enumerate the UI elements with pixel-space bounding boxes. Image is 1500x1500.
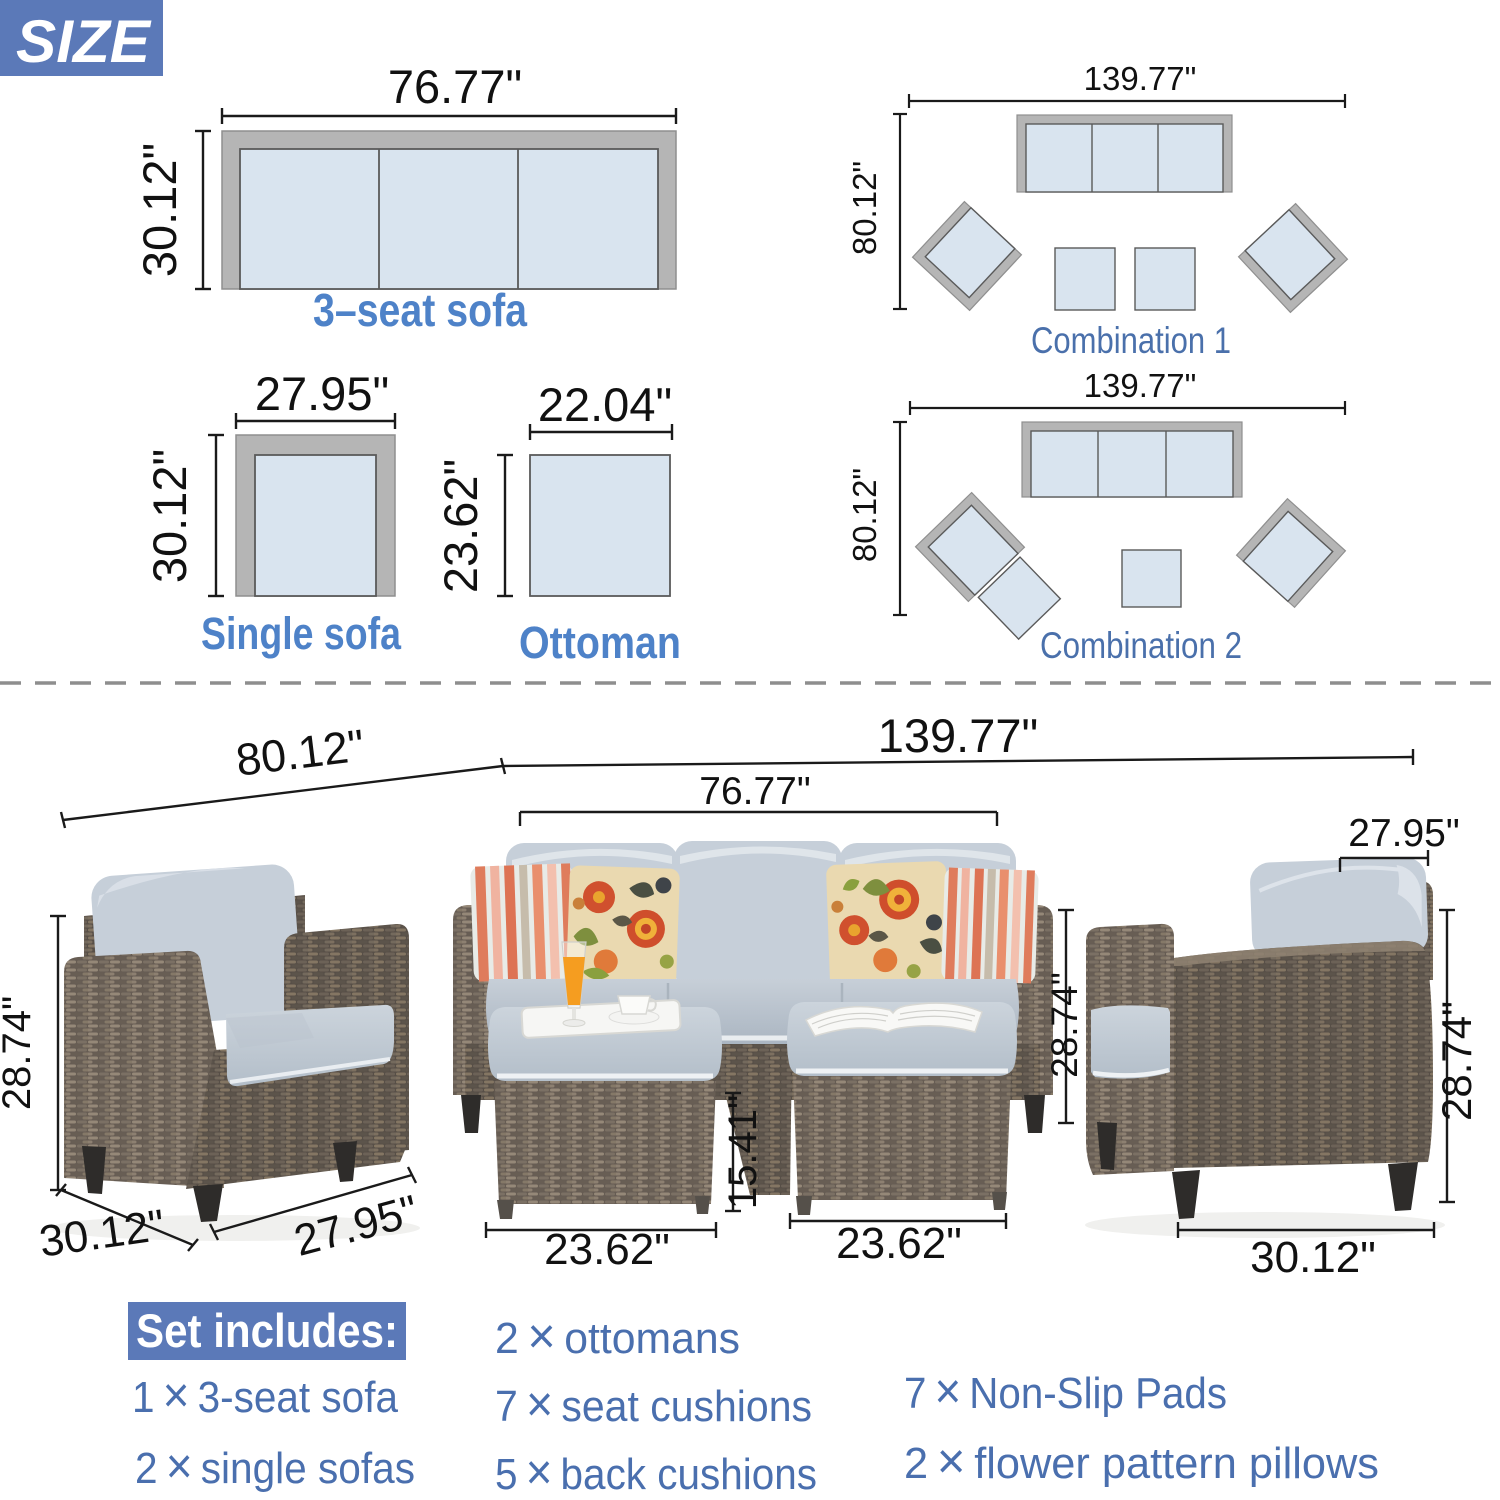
- svg-text:28.74": 28.74": [1433, 1001, 1480, 1121]
- svg-text:3–seat sofa: 3–seat sofa: [313, 284, 527, 336]
- svg-text:80.12": 80.12": [233, 719, 367, 785]
- svg-text:139.77": 139.77": [1084, 367, 1197, 404]
- svg-text:7 × seat cushions: 7 × seat cushions: [495, 1376, 812, 1432]
- svg-text:Combination 1: Combination 1: [1031, 320, 1231, 361]
- svg-text:Single sofa: Single sofa: [201, 608, 402, 659]
- svg-text:Set includes:: Set includes:: [136, 1304, 398, 1357]
- svg-text:2 × flower pattern pillows: 2 × flower pattern pillows: [904, 1433, 1379, 1489]
- svg-text:Ottoman: Ottoman: [519, 617, 681, 668]
- svg-text:2 × ottomans: 2 × ottomans: [495, 1308, 740, 1364]
- svg-text:28.74": 28.74": [1044, 972, 1085, 1078]
- svg-text:28.74": 28.74": [0, 996, 39, 1110]
- svg-text:80.12": 80.12": [846, 161, 883, 255]
- svg-text:5 × back cushions: 5 × back cushions: [495, 1444, 817, 1500]
- svg-text:80.12": 80.12": [846, 468, 883, 562]
- svg-text:1 × 3-seat sofa: 1 × 3-seat sofa: [132, 1367, 398, 1423]
- svg-text:23.62": 23.62": [544, 1225, 670, 1274]
- svg-text:27.95": 27.95": [255, 367, 389, 420]
- svg-text:7 × Non-Slip Pads: 7 × Non-Slip Pads: [904, 1363, 1227, 1419]
- svg-text:76.77": 76.77": [388, 60, 522, 113]
- svg-text:139.77": 139.77": [878, 709, 1038, 762]
- svg-text:27.95": 27.95": [1348, 812, 1459, 855]
- svg-text:23.62": 23.62": [434, 459, 487, 593]
- svg-text:139.77": 139.77": [1084, 60, 1197, 97]
- svg-text:22.04": 22.04": [538, 378, 672, 431]
- svg-text:SIZE: SIZE: [16, 8, 152, 75]
- svg-text:15.41": 15.41": [721, 1095, 765, 1209]
- svg-text:23.62": 23.62": [836, 1219, 962, 1268]
- svg-text:2 × single sofas: 2 × single sofas: [135, 1438, 415, 1494]
- svg-text:30.12": 30.12": [1250, 1233, 1376, 1282]
- svg-text:Combination 2: Combination 2: [1040, 625, 1242, 666]
- svg-text:30.12": 30.12": [36, 1201, 167, 1267]
- svg-text:76.77": 76.77": [699, 770, 810, 813]
- svg-text:30.12": 30.12": [133, 143, 186, 277]
- svg-text:27.95": 27.95": [289, 1186, 423, 1266]
- svg-text:30.12": 30.12": [143, 449, 196, 583]
